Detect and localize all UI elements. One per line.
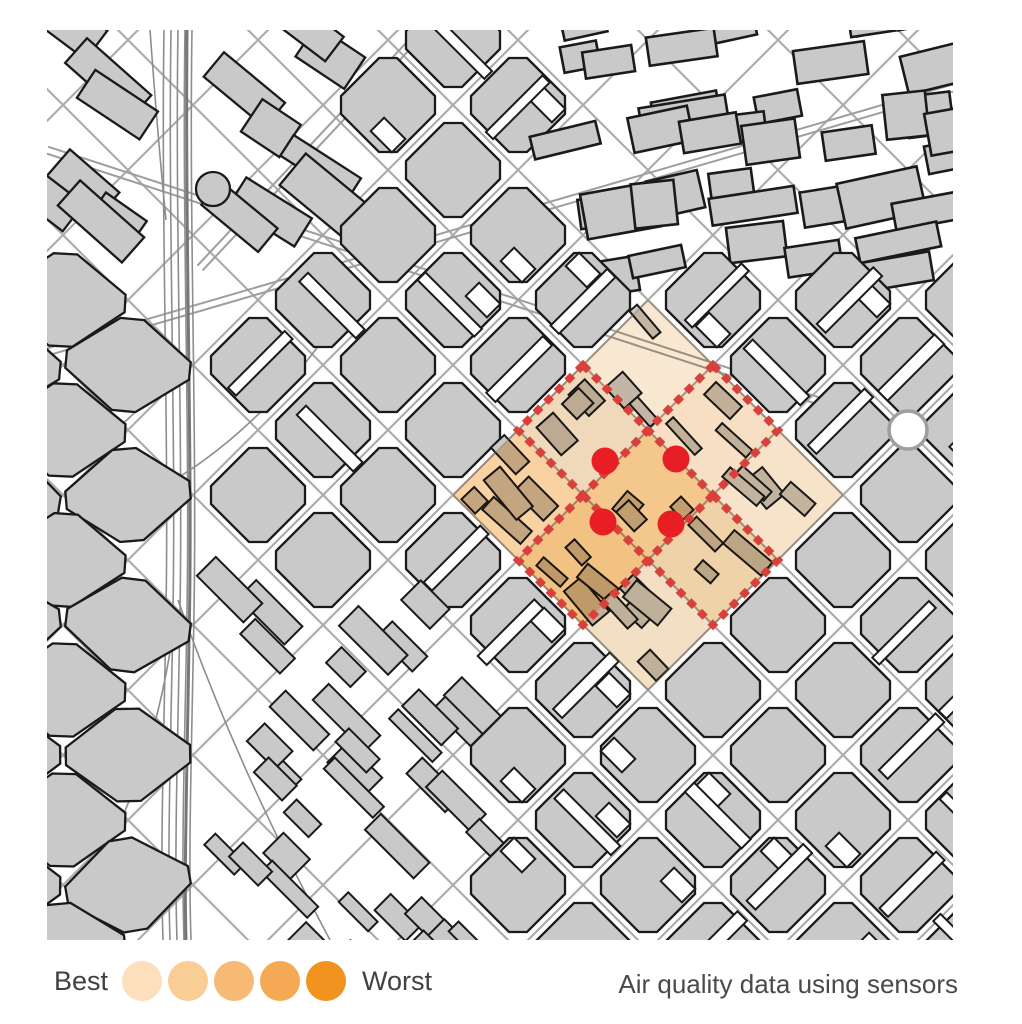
building — [471, 0, 565, 22]
building — [991, 838, 1022, 932]
courtyard — [371, 0, 406, 22]
legend-best-label: Best — [54, 968, 108, 995]
building — [1011, 107, 1022, 144]
building — [894, 0, 960, 30]
building — [991, 448, 1022, 542]
building — [365, 814, 429, 878]
building — [974, 65, 1022, 114]
building — [631, 180, 678, 229]
building — [284, 800, 322, 838]
round-building — [196, 172, 230, 206]
building — [254, 758, 297, 801]
sensor-dot-3 — [590, 509, 617, 536]
sensor-dot-1 — [592, 448, 619, 475]
courtyard — [997, 596, 1022, 661]
courtyard — [956, 833, 991, 868]
city-map — [0, 0, 1022, 1024]
building — [756, 0, 802, 4]
building — [73, 0, 133, 19]
building — [793, 41, 869, 84]
building — [790, 0, 829, 28]
roundabout — [889, 411, 927, 449]
legend-color-scale — [122, 961, 352, 1001]
building — [0, 0, 18, 24]
street-line — [1008, 0, 1022, 1024]
building — [991, 578, 1022, 672]
map-caption: Air quality data using sensors — [618, 969, 958, 1000]
building — [822, 125, 876, 161]
building — [559, 7, 607, 41]
building — [628, 245, 685, 278]
street-line — [998, 0, 1022, 1024]
building — [697, 0, 771, 30]
sensor-dot-4 — [658, 511, 685, 538]
legend-circle-1 — [122, 961, 162, 1001]
building — [900, 39, 983, 95]
building — [726, 221, 787, 263]
courtyard — [1011, 723, 1022, 789]
building — [339, 892, 378, 931]
legend-circle-4 — [260, 961, 300, 1001]
building — [646, 28, 718, 66]
building — [0, 56, 11, 122]
courtyard — [1001, 843, 1022, 909]
building — [0, 78, 40, 133]
building — [976, 239, 1022, 276]
legend-circle-5 — [306, 961, 346, 1001]
air-quality-legend: Best Worst — [54, 958, 432, 1004]
building — [847, 4, 895, 38]
map-layers — [0, 0, 1022, 1024]
building — [449, 922, 501, 974]
courtyard — [986, 673, 1021, 708]
courtyard — [986, 413, 1021, 448]
building — [985, 58, 1022, 89]
building — [603, 0, 674, 20]
building — [582, 45, 635, 79]
building — [326, 647, 366, 687]
building — [741, 119, 800, 165]
street-line — [0, 0, 28, 1024]
building — [229, 843, 272, 886]
building — [980, 23, 1022, 73]
building — [802, 0, 860, 28]
courtyard — [949, 390, 1012, 453]
building — [991, 318, 1022, 412]
courtyard — [1015, 325, 1022, 388]
building — [837, 0, 916, 15]
building — [982, 191, 1022, 228]
building — [197, 0, 264, 8]
building — [341, 0, 435, 22]
legend-circle-3 — [214, 961, 254, 1001]
building — [0, 209, 6, 274]
sensor-dot-2 — [663, 446, 690, 473]
building — [882, 91, 929, 140]
building — [974, 222, 1022, 267]
air-quality-map-page: Best Worst Air quality data using sensor… — [0, 0, 1022, 1024]
building — [978, 0, 1022, 21]
legend-circle-2 — [168, 961, 208, 1001]
building — [991, 708, 1022, 802]
legend-worst-label: Worst — [362, 968, 432, 995]
